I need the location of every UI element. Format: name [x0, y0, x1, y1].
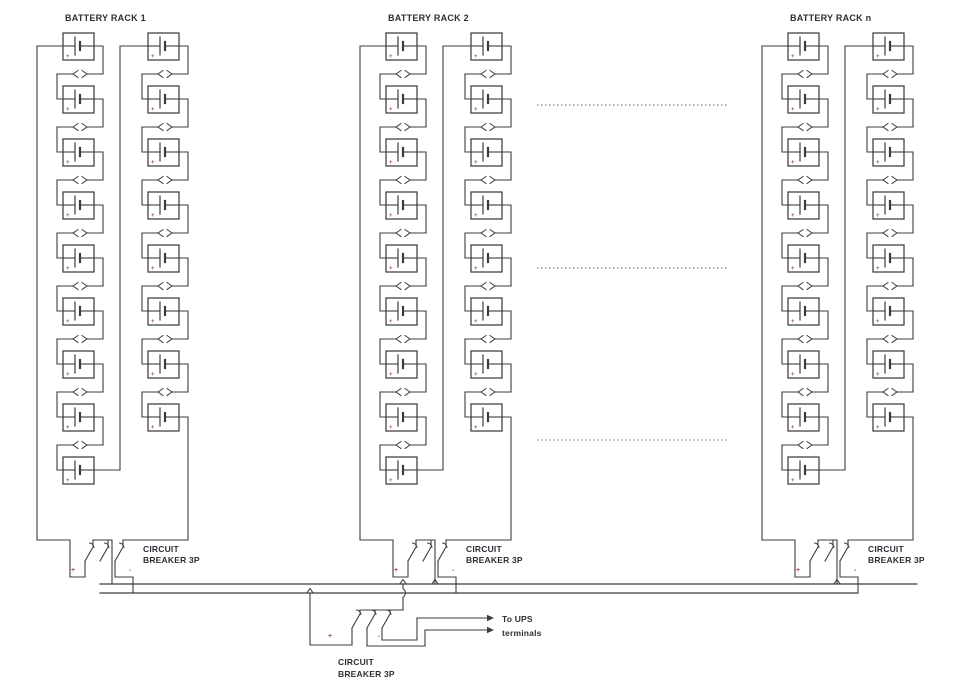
battery-cell: +: [386, 33, 417, 60]
breaker-label-line1: CIRCUIT: [868, 544, 904, 554]
battery-cell: +: [148, 139, 179, 166]
breaker-blade: [438, 547, 446, 561]
series-wire: [417, 152, 426, 180]
series-wire: [819, 258, 828, 286]
main-breaker: +-CIRCUITBREAKER 3P: [307, 580, 425, 680]
series-wire: [417, 99, 426, 127]
series-wire: [782, 286, 788, 311]
series-wire: [380, 339, 386, 364]
disconnect-chevron: [490, 71, 495, 78]
series-wire: [57, 233, 63, 258]
breaker-minus-mark: -: [452, 567, 455, 574]
breaker-plus-mark: +: [71, 567, 75, 574]
series-wire: [502, 152, 511, 180]
disconnect-icon: [142, 71, 188, 78]
disconnect-icon: [782, 230, 828, 237]
positive-rail: [37, 46, 63, 540]
battery-plus-mark: +: [474, 54, 478, 60]
series-wire: [94, 99, 103, 127]
battery-cell: +: [788, 298, 819, 325]
breaker-label-line2: BREAKER 3P: [466, 555, 523, 565]
battery-cell: +: [873, 33, 904, 60]
battery-cell: +: [873, 298, 904, 325]
disconnect-chevron: [396, 124, 401, 131]
disconnect-chevron: [396, 442, 401, 449]
disconnect-icon: [57, 389, 103, 396]
junction-mark: [307, 589, 313, 594]
battery-plus-mark: +: [151, 425, 155, 431]
disconnect-chevron: [807, 336, 812, 343]
disconnect-chevron: [807, 230, 812, 237]
battery-plus-mark: +: [66, 54, 70, 60]
battery-plus-mark: +: [151, 107, 155, 113]
disconnect-icon: [782, 177, 828, 184]
series-wire: [380, 74, 386, 99]
battery-cell: +: [788, 457, 819, 484]
series-wire: [57, 445, 63, 470]
disconnect-icon: [57, 442, 103, 449]
series-wire: [417, 311, 426, 339]
positive-rail: [360, 46, 386, 540]
series-wire: [179, 311, 188, 339]
disconnect-icon: [380, 177, 426, 184]
breaker-minus-mark: -: [129, 567, 132, 574]
disconnect-icon: [142, 124, 188, 131]
series-wire: [465, 180, 471, 205]
battery-cell: +: [471, 192, 502, 219]
disconnect-chevron: [883, 230, 888, 237]
battery-cell: +: [386, 457, 417, 484]
series-wire: [904, 364, 913, 392]
disconnect-chevron: [798, 336, 803, 343]
breaker-blade: [85, 547, 93, 561]
series-wire: [142, 286, 148, 311]
breaker-blade: [408, 547, 416, 561]
battery-cell: +: [148, 33, 179, 60]
series-wire: [417, 258, 426, 286]
battery-plus-mark: +: [389, 54, 393, 60]
series-wire: [57, 74, 63, 99]
battery-cell: +: [471, 404, 502, 431]
series-wire: [465, 339, 471, 364]
battery-plus-mark: +: [151, 319, 155, 325]
disconnect-chevron: [73, 230, 78, 237]
series-wire: [819, 205, 828, 233]
battery-plus-mark: +: [151, 54, 155, 60]
disconnect-chevron: [807, 71, 812, 78]
battery-cell: +: [63, 298, 94, 325]
disconnect-chevron: [73, 71, 78, 78]
disconnect-chevron: [167, 389, 172, 396]
battery-plus-mark: +: [474, 319, 478, 325]
series-wire: [904, 152, 913, 180]
series-wire: [179, 99, 188, 127]
disconnect-icon: [867, 71, 913, 78]
disconnect-chevron: [798, 283, 803, 290]
battery-plus-mark: +: [66, 478, 70, 484]
disconnect-chevron: [73, 177, 78, 184]
disconnect-icon: [380, 442, 426, 449]
series-wire: [465, 233, 471, 258]
series-wire: [417, 205, 426, 233]
series-wire: [417, 364, 426, 392]
battery-cell: +: [386, 86, 417, 113]
breaker-plus-mark: +: [796, 567, 800, 574]
battery-plus-mark: +: [791, 266, 795, 272]
disconnect-chevron: [892, 389, 897, 396]
arrow-right-icon: [487, 627, 494, 633]
breaker-plus-step: [360, 540, 408, 577]
series-wire: [819, 152, 828, 180]
disconnect-chevron: [82, 230, 87, 237]
negative-rail: [446, 417, 511, 540]
battery-plus-mark: +: [791, 478, 795, 484]
battery-cell: +: [386, 192, 417, 219]
battery-cell: +: [63, 457, 94, 484]
series-wire: [904, 258, 913, 286]
disconnect-chevron: [892, 336, 897, 343]
disconnect-icon: [782, 71, 828, 78]
disconnect-chevron: [73, 336, 78, 343]
bus-tap-negative: [438, 561, 456, 593]
disconnect-icon: [57, 283, 103, 290]
continuation-dots: [537, 105, 727, 440]
battery-cell: +: [148, 351, 179, 378]
disconnect-chevron: [798, 177, 803, 184]
series-wire: [867, 180, 873, 205]
series-wire: [867, 127, 873, 152]
disconnect-chevron: [396, 336, 401, 343]
arrow-right-icon: [487, 615, 494, 621]
battery-plus-mark: +: [389, 319, 393, 325]
disconnect-chevron: [396, 230, 401, 237]
disconnect-icon: [867, 283, 913, 290]
battery-cell: +: [788, 192, 819, 219]
series-wire: [142, 233, 148, 258]
disconnect-chevron: [490, 283, 495, 290]
series-wire: [782, 180, 788, 205]
battery-rack-2: BATTERY RACK 2++++++++++++++++++-CIRCUIT…: [360, 13, 523, 593]
disconnect-chevron: [883, 177, 888, 184]
disconnect-icon: [782, 442, 828, 449]
disconnect-chevron: [807, 389, 812, 396]
disconnect-chevron: [490, 389, 495, 396]
disconnect-chevron: [82, 71, 87, 78]
disconnect-chevron: [167, 283, 172, 290]
series-wire: [94, 364, 103, 392]
disconnect-icon: [57, 124, 103, 131]
disconnect-chevron: [158, 177, 163, 184]
disconnect-chevron: [807, 177, 812, 184]
disconnect-chevron: [892, 71, 897, 78]
series-wire: [819, 417, 828, 445]
battery-plus-mark: +: [876, 319, 880, 325]
disconnect-icon: [867, 389, 913, 396]
breaker-blade: [840, 547, 848, 561]
series-wire: [502, 99, 511, 127]
series-wire: [465, 286, 471, 311]
series-wire: [179, 258, 188, 286]
battery-plus-mark: +: [66, 372, 70, 378]
disconnect-chevron: [396, 389, 401, 396]
battery-cell: +: [386, 404, 417, 431]
disconnect-icon: [465, 283, 511, 290]
negative-rail: [848, 417, 913, 540]
disconnect-chevron: [798, 389, 803, 396]
disconnect-icon: [465, 336, 511, 343]
battery-plus-mark: +: [66, 160, 70, 166]
output-run-outer: [367, 628, 425, 646]
breaker-blade: [100, 547, 108, 561]
series-wire: [502, 364, 511, 392]
battery-cell: +: [148, 404, 179, 431]
negative-rail: [123, 417, 188, 540]
disconnect-chevron: [158, 124, 163, 131]
disconnect-chevron: [405, 442, 410, 449]
rack-title: BATTERY RACK 2: [388, 13, 469, 23]
series-wire: [867, 392, 873, 417]
series-wire: [179, 152, 188, 180]
battery-plus-mark: +: [876, 107, 880, 113]
disconnect-chevron: [481, 336, 486, 343]
disconnect-chevron: [82, 283, 87, 290]
battery-plus-mark: +: [66, 319, 70, 325]
rack-breaker-2: +-CIRCUITBREAKER 3P: [360, 540, 523, 593]
series-wire: [782, 392, 788, 417]
series-wire: [179, 46, 188, 74]
disconnect-chevron: [158, 230, 163, 237]
rack-breaker-3: +-CIRCUITBREAKER 3P: [762, 540, 925, 593]
disconnect-chevron: [73, 283, 78, 290]
disconnect-chevron: [405, 336, 410, 343]
battery-cell: +: [471, 139, 502, 166]
breaker-label-line2: BREAKER 3P: [143, 555, 200, 565]
disconnect-chevron: [490, 124, 495, 131]
disconnect-chevron: [82, 442, 87, 449]
disconnect-chevron: [883, 389, 888, 396]
series-wire: [142, 339, 148, 364]
breaker-blade: [367, 614, 375, 628]
series-wire: [417, 417, 426, 445]
breaker-blade: [423, 547, 431, 561]
disconnect-chevron: [396, 71, 401, 78]
battery-plus-mark: +: [151, 266, 155, 272]
disconnect-chevron: [807, 124, 812, 131]
breaker-label-line1: CIRCUIT: [466, 544, 502, 554]
battery-plus-mark: +: [389, 478, 393, 484]
battery-cell: +: [63, 192, 94, 219]
disconnect-icon: [380, 230, 426, 237]
disconnect-icon: [142, 336, 188, 343]
series-wire: [380, 233, 386, 258]
battery-plus-mark: +: [389, 213, 393, 219]
battery-plus-mark: +: [791, 213, 795, 219]
battery-plus-mark: +: [876, 54, 880, 60]
disconnect-chevron: [481, 71, 486, 78]
battery-cell: +: [788, 139, 819, 166]
battery-plus-mark: +: [474, 160, 478, 166]
battery-cell: +: [63, 245, 94, 272]
breaker-blade: [115, 547, 123, 561]
series-wire: [782, 127, 788, 152]
battery-plus-mark: +: [389, 160, 393, 166]
bus-tap-negative: [840, 561, 858, 593]
disconnect-icon: [380, 71, 426, 78]
disconnect-chevron: [73, 389, 78, 396]
battery-cell: +: [471, 245, 502, 272]
disconnect-chevron: [396, 283, 401, 290]
disconnect-chevron: [490, 336, 495, 343]
disconnect-icon: [782, 336, 828, 343]
disconnect-chevron: [892, 177, 897, 184]
pole-top-stub: [93, 540, 123, 546]
series-wire: [94, 311, 103, 339]
series-wire: [904, 205, 913, 233]
disconnect-icon: [782, 389, 828, 396]
series-wire: [142, 74, 148, 99]
battery-cell: +: [873, 86, 904, 113]
ups-output: To UPSterminals: [417, 614, 542, 638]
disconnect-chevron: [883, 124, 888, 131]
disconnect-chevron: [405, 230, 410, 237]
battery-plus-mark: +: [66, 425, 70, 431]
disconnect-icon: [380, 389, 426, 396]
breaker-blade: [825, 547, 833, 561]
series-wire: [380, 445, 386, 470]
disconnect-icon: [465, 124, 511, 131]
series-wire: [380, 392, 386, 417]
disconnect-icon: [867, 230, 913, 237]
battery-cell: +: [788, 33, 819, 60]
disconnect-chevron: [167, 336, 172, 343]
disconnect-chevron: [798, 124, 803, 131]
disconnect-icon: [867, 177, 913, 184]
battery-plus-mark: +: [151, 213, 155, 219]
disconnect-chevron: [158, 71, 163, 78]
battery-plus-mark: +: [151, 160, 155, 166]
disconnect-chevron: [405, 283, 410, 290]
series-wire: [867, 74, 873, 99]
disconnect-icon: [142, 230, 188, 237]
disconnect-icon: [465, 177, 511, 184]
disconnect-chevron: [798, 442, 803, 449]
junction-mark: [400, 580, 406, 585]
battery-cell: +: [471, 298, 502, 325]
battery-plus-mark: +: [151, 372, 155, 378]
battery-cell: +: [148, 192, 179, 219]
series-wire: [57, 392, 63, 417]
battery-plus-mark: +: [791, 425, 795, 431]
series-wire: [380, 180, 386, 205]
battery-plus-mark: +: [474, 425, 478, 431]
battery-cell: +: [63, 139, 94, 166]
breaker-plus-step: [37, 540, 85, 577]
battery-cell: +: [471, 351, 502, 378]
disconnect-chevron: [73, 442, 78, 449]
series-wire: [782, 339, 788, 364]
disconnect-icon: [465, 389, 511, 396]
disconnect-icon: [782, 124, 828, 131]
battery-plus-mark: +: [791, 319, 795, 325]
battery-cell: +: [788, 404, 819, 431]
battery-cell: +: [873, 192, 904, 219]
disconnect-chevron: [82, 124, 87, 131]
breaker-blade: [382, 614, 390, 628]
disconnect-chevron: [807, 442, 812, 449]
series-wire: [465, 127, 471, 152]
disconnect-icon: [142, 389, 188, 396]
series-wire: [142, 392, 148, 417]
disconnect-chevron: [798, 71, 803, 78]
battery-plus-mark: +: [791, 54, 795, 60]
disconnect-icon: [380, 124, 426, 131]
disconnect-chevron: [481, 230, 486, 237]
disconnect-chevron: [158, 389, 163, 396]
disconnect-chevron: [167, 177, 172, 184]
disconnect-chevron: [490, 177, 495, 184]
rack-breaker-1: +-CIRCUITBREAKER 3P: [37, 540, 200, 593]
series-wire: [819, 46, 828, 74]
disconnect-chevron: [167, 230, 172, 237]
battery-cell: +: [148, 298, 179, 325]
battery-plus-mark: +: [389, 425, 393, 431]
battery-plus-mark: +: [876, 425, 880, 431]
battery-plus-mark: +: [66, 213, 70, 219]
disconnect-icon: [465, 230, 511, 237]
battery-cell: +: [148, 245, 179, 272]
battery-plus-mark: +: [389, 372, 393, 378]
disconnect-chevron: [82, 336, 87, 343]
battery-cell: +: [471, 86, 502, 113]
series-wire: [867, 339, 873, 364]
disconnect-chevron: [82, 177, 87, 184]
disconnect-chevron: [73, 124, 78, 131]
series-wire: [94, 205, 103, 233]
rack-title: BATTERY RACK n: [790, 13, 871, 23]
series-wire: [819, 311, 828, 339]
series-wire: [417, 46, 426, 74]
series-wire: [179, 205, 188, 233]
series-wire: [904, 46, 913, 74]
battery-plus-mark: +: [474, 107, 478, 113]
battery-rack-1: BATTERY RACK 1++++++++++++++++++-CIRCUIT…: [37, 13, 200, 593]
rack-title: BATTERY RACK 1: [65, 13, 146, 23]
series-wire: [380, 127, 386, 152]
disconnect-chevron: [883, 283, 888, 290]
wiring-diagram: BATTERY RACK 1++++++++++++++++++-CIRCUIT…: [0, 0, 962, 695]
series-wire: [465, 392, 471, 417]
series-wire: [465, 74, 471, 99]
series-wire: [819, 364, 828, 392]
disconnect-chevron: [481, 283, 486, 290]
series-wire: [782, 233, 788, 258]
breaker-blade: [810, 547, 818, 561]
disconnect-chevron: [883, 71, 888, 78]
main-plus-mark: +: [328, 633, 332, 640]
disconnect-icon: [142, 283, 188, 290]
series-wire: [502, 311, 511, 339]
battery-cell: +: [788, 351, 819, 378]
ups-label-line2: terminals: [502, 628, 542, 638]
main-breaker-label-line1: CIRCUIT: [338, 657, 374, 667]
series-wire: [782, 445, 788, 470]
battery-plus-mark: +: [474, 213, 478, 219]
battery-plus-mark: +: [876, 160, 880, 166]
battery-plus-mark: +: [66, 107, 70, 113]
series-wire: [904, 99, 913, 127]
battery-cell: +: [63, 86, 94, 113]
battery-plus-mark: +: [66, 266, 70, 272]
